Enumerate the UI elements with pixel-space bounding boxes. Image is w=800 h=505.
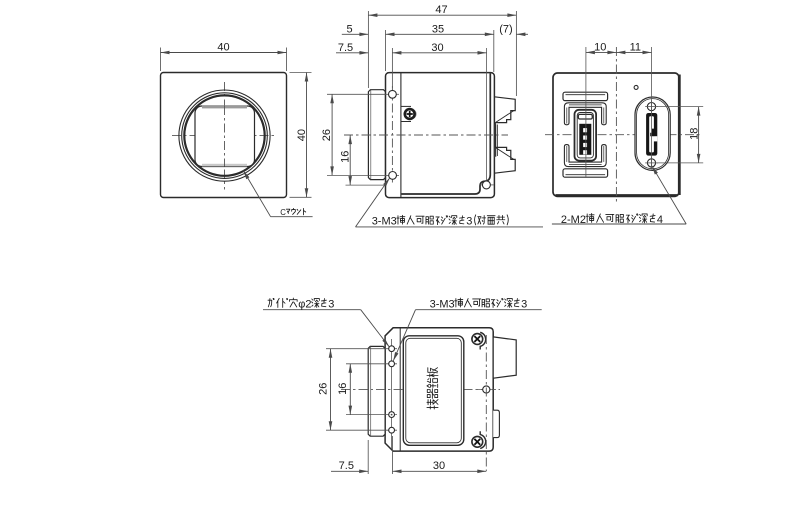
svg-text:φ2: φ2 — [298, 298, 311, 310]
svg-text:10: 10 — [594, 41, 606, 53]
svg-text:47: 47 — [435, 4, 447, 16]
svg-text:3: 3 — [328, 298, 334, 310]
svg-text:35: 35 — [432, 23, 444, 35]
svg-text:30: 30 — [433, 460, 445, 472]
svg-text:18: 18 — [689, 128, 701, 140]
svg-text:7.5: 7.5 — [338, 42, 353, 54]
svg-text:30: 30 — [431, 42, 443, 54]
svg-text:7.5: 7.5 — [339, 460, 354, 472]
svg-text:40: 40 — [217, 42, 229, 54]
svg-text:11: 11 — [630, 41, 641, 53]
svg-text:2-M2: 2-M2 — [561, 214, 586, 226]
svg-text:40: 40 — [296, 129, 308, 141]
svg-text:16: 16 — [339, 151, 351, 163]
svg-text:3: 3 — [521, 298, 527, 310]
svg-text:C: C — [280, 208, 286, 217]
svg-text:(7): (7) — [499, 23, 512, 35]
svg-text:4: 4 — [657, 214, 663, 226]
svg-text:3: 3 — [466, 216, 472, 228]
svg-text:26: 26 — [321, 129, 333, 141]
svg-text:3-M3: 3-M3 — [372, 216, 397, 228]
svg-text:26: 26 — [318, 383, 330, 395]
svg-text:16: 16 — [337, 383, 349, 395]
svg-text:3-M3: 3-M3 — [430, 298, 455, 310]
svg-text:5: 5 — [346, 23, 352, 35]
